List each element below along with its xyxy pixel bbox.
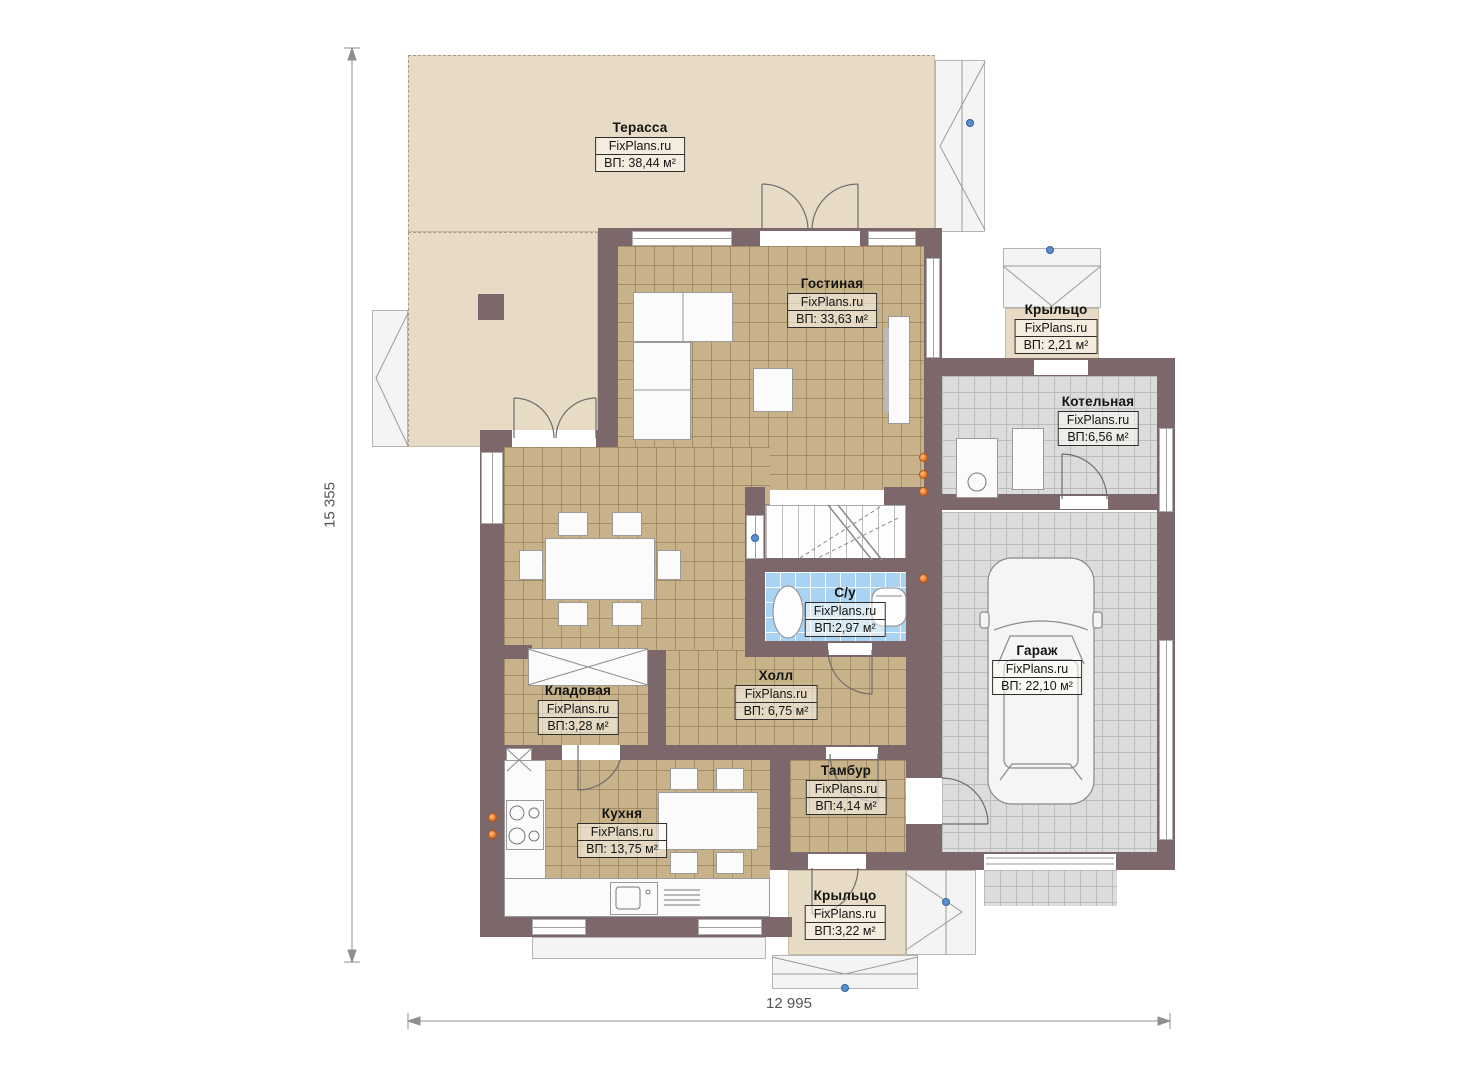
terrace-roof-overhang-right — [935, 60, 985, 232]
wall-segment — [598, 246, 618, 447]
room-area: ВП: 2,21 м² — [1016, 337, 1097, 353]
room-label-vestibule: Тамбур FixPlans.ruВП:4,14 м² — [806, 763, 887, 815]
wall-segment — [620, 745, 792, 760]
chair — [716, 852, 744, 874]
stove — [506, 800, 544, 850]
room-label-bottom-porch: Крыльцо FixPlans.ruВП:3,22 м² — [805, 888, 886, 940]
chair — [519, 550, 543, 580]
room-label-living-room: Гостиная FixPlans.ruВП: 33,63 м² — [787, 276, 877, 328]
window — [481, 452, 503, 524]
radiator-marker — [919, 487, 928, 496]
top-porch-canopy — [1003, 248, 1101, 308]
tv-cabinet — [888, 316, 910, 424]
garage-side-door-opening — [906, 778, 942, 824]
watermark: FixPlans.ru — [806, 603, 885, 620]
chair — [716, 768, 744, 790]
kitchen-table — [658, 792, 758, 850]
room-label-terrace: Терасса FixPlans.ruВП: 38,44 м² — [595, 120, 685, 172]
watermark: FixPlans.ru — [539, 701, 618, 718]
dining-table — [545, 538, 655, 600]
window-marker — [751, 534, 759, 542]
roof-node-marker — [1046, 246, 1054, 254]
terrace-floor-lower — [408, 232, 598, 447]
room-area: ВП:6,56 м² — [1059, 429, 1138, 445]
sofa — [633, 292, 733, 342]
terrace-post — [478, 294, 504, 320]
room-label-boiler-room: Котельная FixPlans.ruВП:6,56 м² — [1058, 394, 1139, 446]
watermark: FixPlans.ru — [993, 661, 1081, 678]
chair — [558, 602, 588, 626]
window — [532, 919, 586, 935]
watermark: FixPlans.ru — [596, 138, 684, 155]
boiler-door-opening — [1060, 496, 1108, 509]
staircase — [765, 505, 906, 560]
kitchen-sink — [610, 882, 658, 915]
dimension-label-horizontal: 12 995 — [766, 995, 812, 1012]
watermark: FixPlans.ru — [1016, 320, 1097, 337]
watermark: FixPlans.ru — [788, 294, 876, 311]
watermark: FixPlans.ru — [1059, 412, 1138, 429]
boiler-unit — [956, 438, 998, 498]
window — [868, 231, 916, 246]
room-label-hall: Холл FixPlans.ruВП: 6,75 м² — [735, 668, 818, 720]
room-area: ВП: 6,75 м² — [736, 703, 817, 719]
kitchen-door-opening — [562, 745, 620, 760]
sofa — [633, 342, 691, 440]
wall-segment — [496, 645, 532, 659]
room-area: ВП: 22,10 м² — [993, 678, 1081, 694]
boiler-entrance-opening — [1034, 360, 1088, 375]
radiator-marker — [919, 470, 928, 479]
dimension-label-vertical: 15 355 — [322, 482, 339, 528]
window — [1159, 640, 1173, 840]
room-label-bathroom: С/у FixPlans.ruВП:2,97 м² — [805, 585, 886, 637]
room-area: ВП:4,14 м² — [807, 798, 886, 814]
chair — [670, 768, 698, 790]
terrace-double-door-opening — [760, 231, 860, 246]
roof-node-marker — [942, 898, 950, 906]
window — [632, 231, 732, 246]
terrace-side-door-opening — [512, 430, 596, 447]
floor-plan: Терасса FixPlans.ruВП: 38,44 м² Гостиная… — [0, 0, 1474, 1080]
chair — [612, 512, 642, 536]
wall-segment — [648, 650, 666, 755]
chair — [558, 512, 588, 536]
roof-node-marker — [841, 984, 849, 992]
watermark: FixPlans.ru — [578, 824, 666, 841]
chair — [612, 602, 642, 626]
chair — [670, 852, 698, 874]
room-label-garage: Гараж FixPlans.ruВП: 22,10 м² — [992, 643, 1082, 695]
chair — [657, 550, 681, 580]
room-area: ВП: 33,63 м² — [788, 311, 876, 327]
room-area: ВП:3,22 м² — [806, 923, 885, 939]
radiator-marker — [488, 830, 497, 839]
wall-segment — [745, 487, 765, 655]
exterior-ledge — [532, 937, 766, 959]
garage-gate-opening — [984, 854, 1116, 870]
window — [1159, 428, 1173, 512]
wall-segment — [765, 558, 915, 572]
watermark: FixPlans.ru — [736, 686, 817, 703]
radiator-marker — [488, 813, 497, 822]
coffee-table — [753, 368, 793, 412]
watermark: FixPlans.ru — [807, 781, 886, 798]
porch-door-opening — [808, 854, 866, 869]
window — [698, 919, 762, 935]
room-label-top-porch: Крыльцо FixPlans.ruВП: 2,21 м² — [1015, 302, 1098, 354]
room-label-storage: Кладовая FixPlans.ruВП:3,28 м² — [538, 683, 619, 735]
watermark: FixPlans.ru — [806, 906, 885, 923]
radiator-marker — [919, 453, 928, 462]
boiler-unit — [1012, 428, 1044, 490]
roof-node-marker — [966, 119, 974, 127]
room-area: ВП:2,97 м² — [806, 620, 885, 636]
garage-apron — [984, 870, 1117, 906]
window — [926, 258, 940, 358]
room-area: ВП: 13,75 м² — [578, 841, 666, 857]
bathroom-door-opening — [828, 643, 872, 655]
radiator-marker — [919, 574, 928, 583]
terrace-roof-overhang-left — [372, 310, 408, 447]
vestibule-door-opening — [826, 747, 878, 759]
room-label-kitchen: Кухня FixPlans.ruВП: 13,75 м² — [577, 806, 667, 858]
room-area: ВП:3,28 м² — [539, 718, 618, 734]
wall-segment — [884, 487, 924, 505]
room-area: ВП: 38,44 м² — [596, 155, 684, 171]
bottom-porch-roof-overhang — [906, 870, 976, 955]
wardrobe — [528, 648, 648, 686]
